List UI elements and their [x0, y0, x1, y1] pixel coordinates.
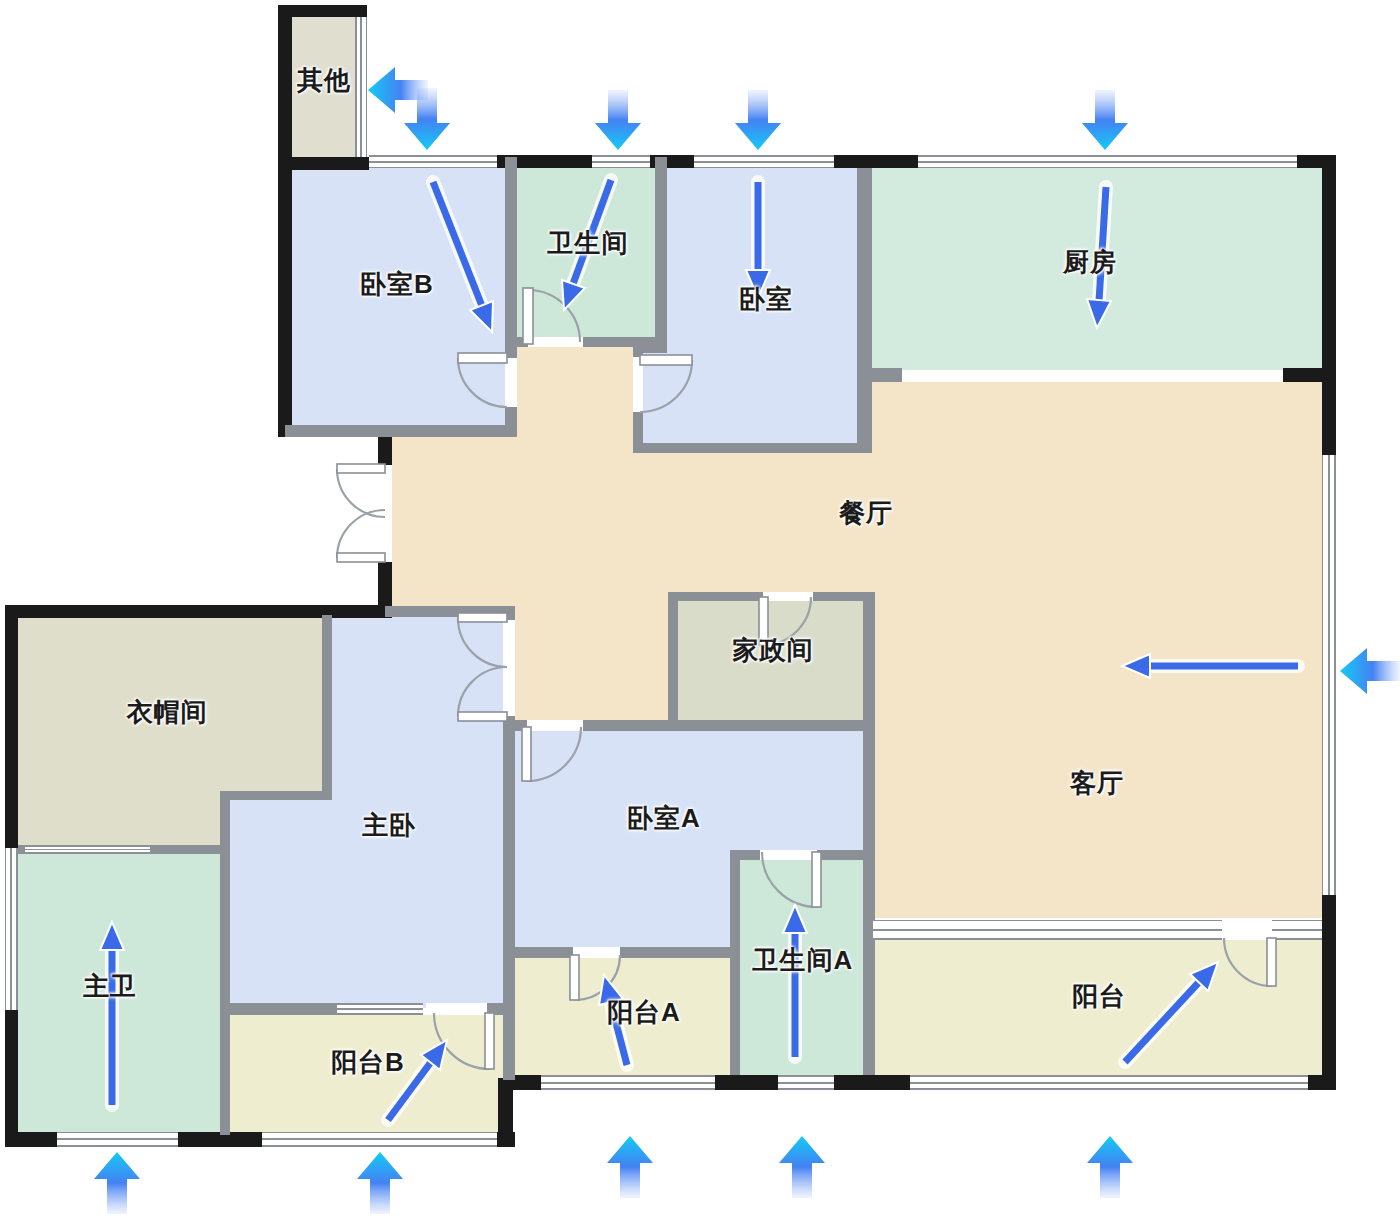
- wall-segment: [834, 1075, 910, 1090]
- door-opening: [760, 850, 817, 860]
- wall-segment: [5, 1132, 57, 1147]
- wall-segment: [655, 157, 667, 353]
- room-bedroom-a: [512, 727, 737, 952]
- airflow-arrow-up: [94, 1152, 140, 1214]
- room-label-housekeeping: 家政间: [733, 633, 814, 668]
- room-label-dining-room: 餐厅: [839, 496, 893, 531]
- door-opening: [528, 337, 583, 347]
- door-opening: [1222, 920, 1272, 940]
- wall-segment: [285, 425, 507, 437]
- window: [369, 155, 497, 168]
- window: [910, 1075, 1308, 1090]
- wall-segment: [503, 1010, 515, 1080]
- airflow-arrow-down: [404, 88, 450, 150]
- wall-segment: [505, 947, 573, 958]
- wall-segment: [834, 155, 918, 168]
- wall-segment: [503, 716, 515, 1012]
- door-opening: [503, 620, 515, 716]
- room-label-bathroom-a: 卫生间A: [753, 943, 854, 978]
- room-label-living-room: 客厅: [1070, 766, 1124, 801]
- wall-segment: [583, 720, 875, 731]
- wall-segment: [505, 407, 517, 437]
- room-label-bedroom-b: 卧室B: [360, 267, 434, 302]
- room-bedroom-notch: [643, 350, 673, 443]
- wall-segment: [817, 850, 865, 860]
- wall-segment: [1283, 368, 1322, 382]
- room-label-other: 其他: [297, 63, 351, 98]
- room-label-bedroom-a: 卧室A: [627, 801, 701, 836]
- wall-segment: [505, 347, 517, 358]
- airflow-arrow-down: [735, 90, 781, 150]
- wall-segment: [715, 1075, 778, 1090]
- wall-segment: [220, 791, 332, 800]
- window: [57, 1132, 178, 1147]
- room-label-master-bedroom: 主卧: [362, 808, 416, 843]
- door-opening: [633, 357, 643, 412]
- door-opening: [573, 947, 620, 958]
- wall-segment: [8, 605, 392, 618]
- wall-segment: [378, 433, 392, 469]
- wall-segment: [278, 157, 292, 437]
- wall-segment: [503, 612, 515, 620]
- door-opening: [426, 1003, 487, 1015]
- door-opening: [527, 720, 583, 731]
- window: [778, 1075, 834, 1090]
- airflow-arrow-down: [595, 90, 641, 150]
- airflow-arrow-up: [779, 1136, 825, 1198]
- window: [5, 848, 18, 1010]
- window: [337, 1003, 423, 1015]
- kitchen-opening: [902, 370, 1283, 382]
- room-cloakroom-lower: [18, 795, 220, 849]
- floor-plan: 其他 卧室B 卫生间 卧室 厨房 餐厅 家政间 衣帽间 主卧 卧室A 主卫 阳台…: [0, 0, 1400, 1216]
- wall-segment: [385, 606, 515, 617]
- wall-segment: [1308, 1075, 1336, 1090]
- room-bedroom-a-right: [737, 727, 863, 852]
- room-label-kitchen: 厨房: [1063, 245, 1117, 280]
- wall-segment: [1322, 155, 1336, 455]
- wall-segment: [633, 350, 643, 357]
- window: [694, 155, 834, 168]
- wall-segment: [505, 157, 517, 347]
- wall-segment: [857, 168, 872, 453]
- wall-segment: [863, 592, 875, 1075]
- window: [918, 155, 1297, 168]
- door-opening: [763, 592, 813, 601]
- wall-segment: [730, 850, 740, 1075]
- wall-segment: [505, 720, 527, 731]
- room-label-bedroom: 卧室: [739, 282, 793, 317]
- wall-segment: [668, 592, 763, 601]
- wall-segment: [222, 1003, 337, 1015]
- room-label-bathroom: 卫生间: [548, 226, 629, 261]
- room-master-bedroom-l: [228, 795, 330, 1008]
- window: [25, 845, 150, 854]
- window: [1272, 920, 1322, 940]
- room-label-master-bathroom: 主卫: [83, 969, 137, 1004]
- window: [355, 17, 367, 157]
- airflow-arrow-up: [607, 1136, 653, 1198]
- wall-segment: [620, 947, 737, 958]
- door-opening: [378, 465, 392, 562]
- airflow-arrow-up: [357, 1152, 403, 1214]
- window: [1322, 455, 1336, 895]
- room-label-cloakroom: 衣帽间: [127, 695, 208, 730]
- wall-segment: [866, 368, 902, 382]
- wall-segment: [322, 615, 332, 798]
- room-label-balcony-a: 阳台A: [607, 995, 681, 1030]
- room-label-balcony: 阳台: [1072, 979, 1126, 1014]
- door-opening: [505, 358, 517, 407]
- room-label-balcony-b: 阳台B: [331, 1045, 405, 1080]
- wall-segment: [18, 845, 25, 854]
- airflow-arrow-down: [1082, 90, 1128, 150]
- window: [541, 1075, 715, 1090]
- airflow-arrow-left: [1340, 648, 1400, 694]
- wall-segment: [668, 592, 678, 730]
- wall-segment: [633, 443, 872, 453]
- window: [873, 920, 1222, 940]
- room-master-bedroom: [330, 615, 503, 1008]
- wall-segment: [487, 1003, 508, 1015]
- airflow-arrow-up: [1087, 1136, 1133, 1198]
- wall-segment: [220, 791, 230, 1135]
- wall-segment: [505, 337, 528, 347]
- wall-segment: [1322, 895, 1336, 1090]
- window: [262, 1132, 497, 1147]
- wall-segment: [150, 845, 222, 854]
- airflow-arrow-left-top: [368, 67, 428, 113]
- wall-segment: [278, 5, 292, 170]
- window: [592, 155, 650, 168]
